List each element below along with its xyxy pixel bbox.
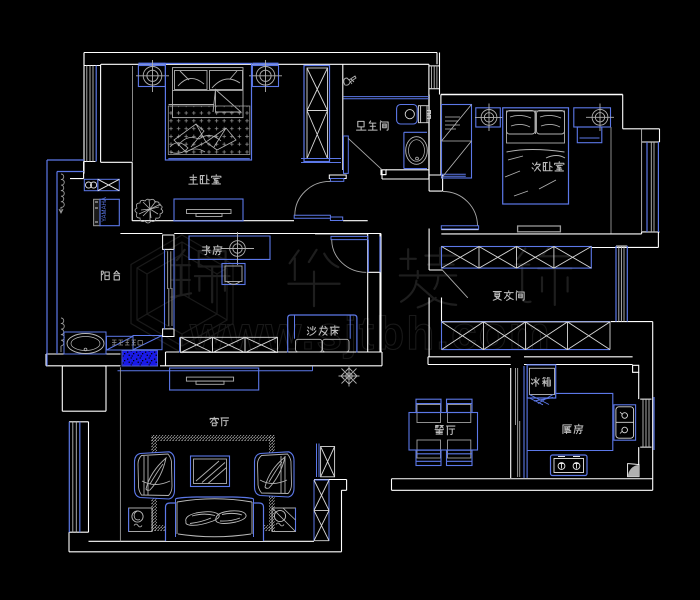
svg-text:YAMAHA: YAMAHA	[102, 197, 108, 222]
svg-text:www.sjtbh.com: www.sjtbh.com	[189, 307, 552, 359]
